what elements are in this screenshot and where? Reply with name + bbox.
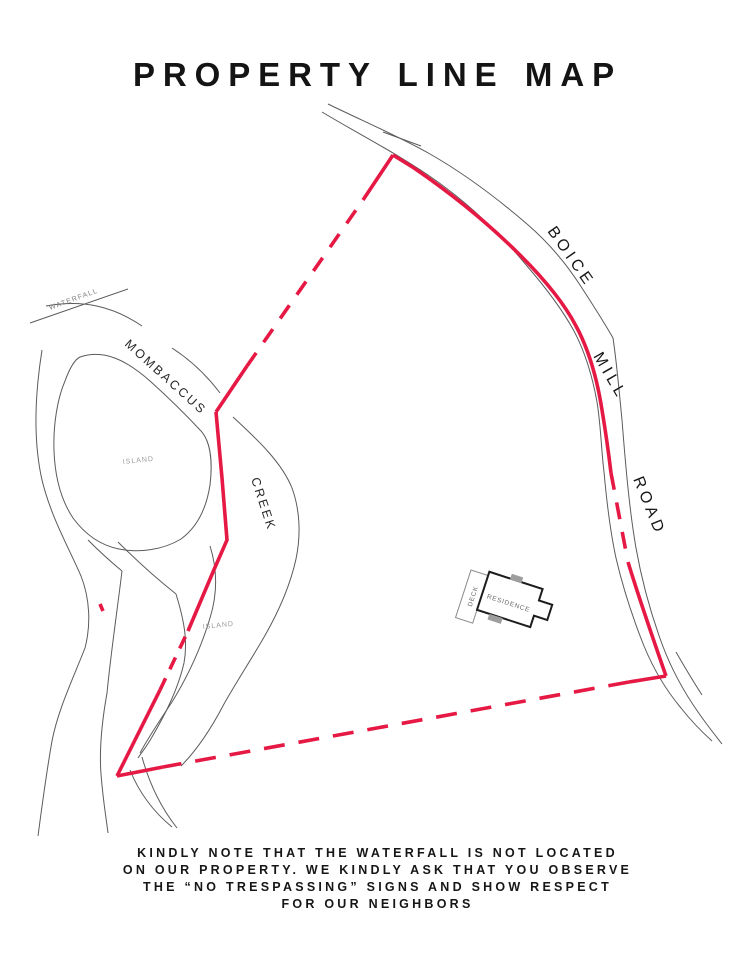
property-line-west-dashed-2	[247, 200, 363, 366]
courtesy-note-line: KINDLY NOTE THAT THE WATERFALL IS NOT LO…	[0, 845, 755, 862]
courtesy-note-line: THE “NO TRESPASSING” SIGNS AND SHOW RESP…	[0, 879, 755, 896]
courtesy-note-line: FOR OUR NEIGHBORS	[0, 896, 755, 913]
creek-left-outer-bank	[36, 350, 89, 836]
property-line-west-solid-4	[363, 155, 393, 200]
property-line-west-solid-3	[216, 366, 247, 412]
road-middle-fragment	[383, 132, 421, 146]
road-name-word-road: ROAD	[629, 474, 668, 538]
creek-name-upper-label: MOMBACCUS	[122, 337, 210, 418]
property-line-south-solid-2	[117, 767, 163, 776]
property-map-canvas: RESIDENCE DECK WATERFALL MOMBACCUS CREEK…	[0, 0, 755, 960]
island-lower-right-edge	[140, 546, 216, 753]
island-upper-label: ISLAND	[122, 456, 154, 466]
property-line-west-solid-2	[188, 412, 227, 631]
road-extra-line	[676, 652, 702, 695]
courtesy-note-line: ON OUR PROPERTY. WE KINDLY ASK THAT YOU …	[0, 862, 755, 879]
island-upper-outline	[54, 354, 211, 550]
creek-bottom-line-1	[130, 770, 172, 827]
stray-red-mark	[100, 604, 103, 611]
property-line-south-dashed	[163, 682, 629, 767]
property-line-west-solid-1	[117, 690, 160, 776]
courtesy-note: KINDLY NOTE THAT THE WATERFALL IS NOT LO…	[0, 845, 755, 913]
residence-group: RESIDENCE DECK	[456, 561, 558, 644]
road-edge-west	[322, 112, 712, 741]
road-name-word-boice: BOICE	[544, 224, 598, 291]
creek-name-lower-label: CREEK	[248, 476, 278, 533]
island-lower-label: ISLAND	[202, 621, 234, 631]
creek-right-bank	[181, 417, 299, 766]
road-edge-east	[328, 104, 722, 744]
island-lower-left-edge	[138, 594, 186, 758]
